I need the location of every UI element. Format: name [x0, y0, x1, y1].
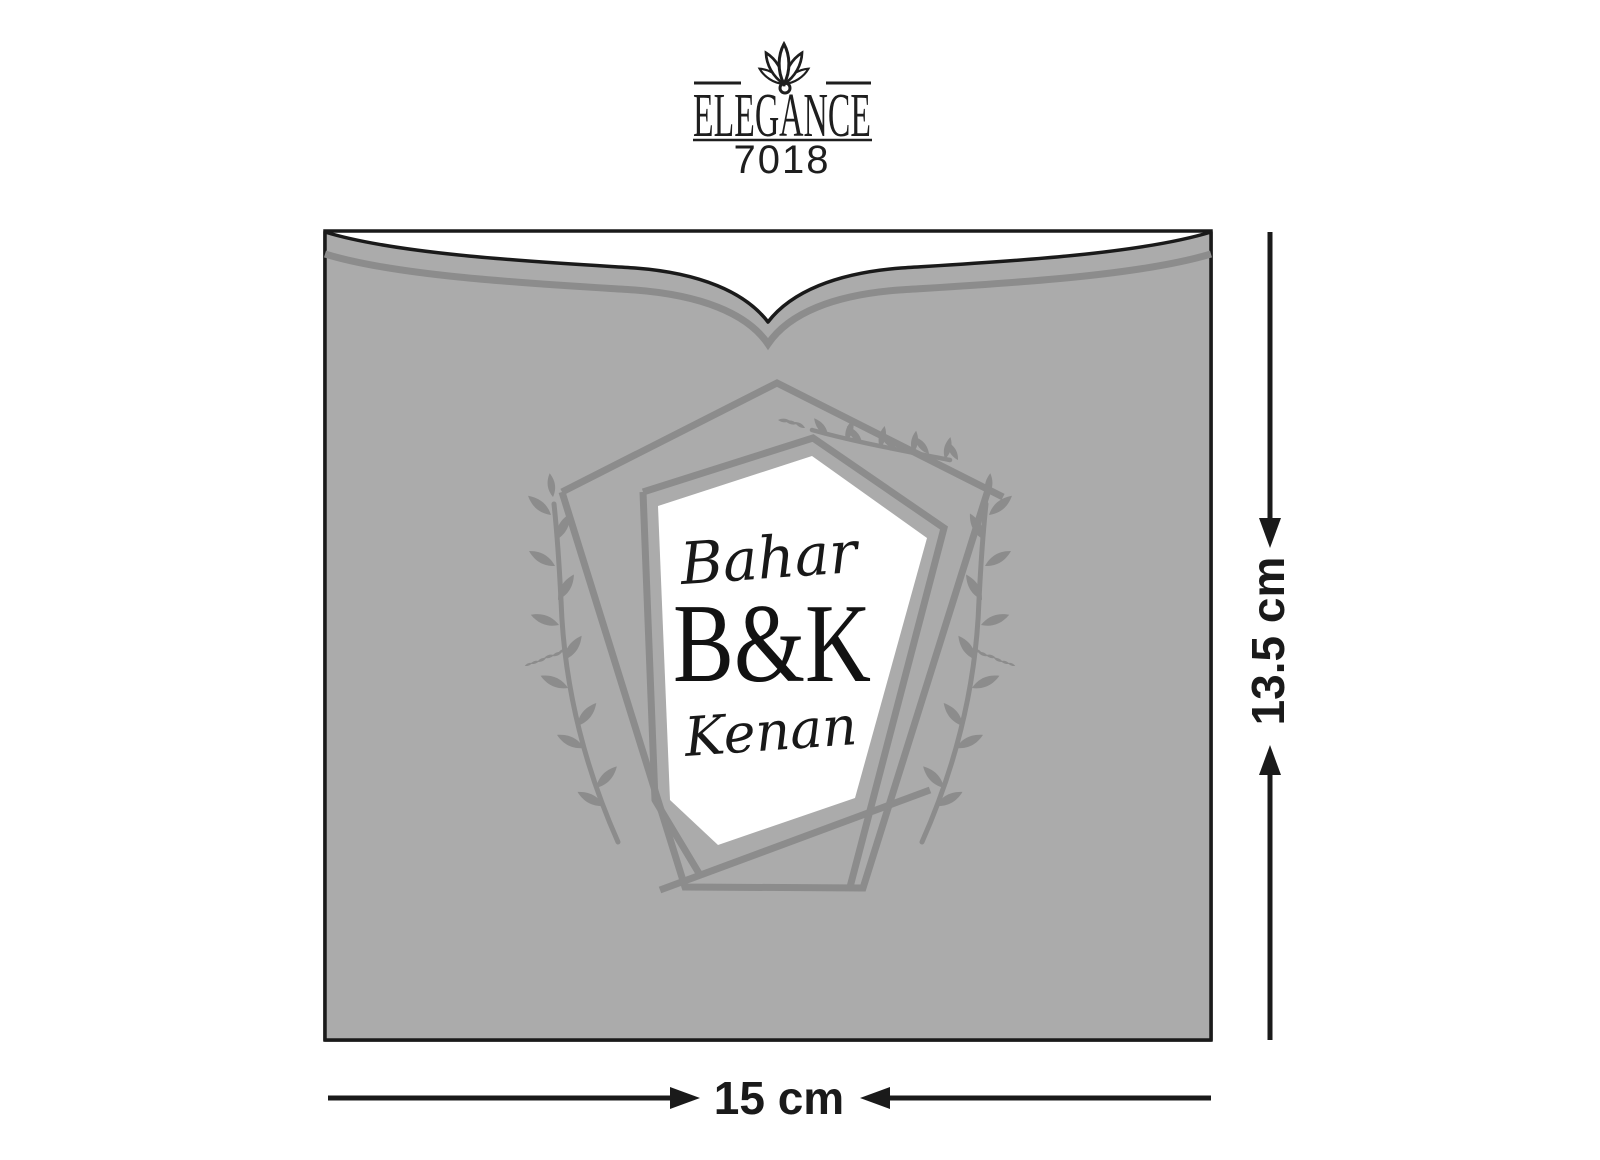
height-dimension: 13.5 cm: [1242, 232, 1294, 1040]
product-code: 7018: [734, 138, 831, 182]
width-dimension-label: 15 cm: [714, 1072, 844, 1124]
width-dimension: 15 cm: [328, 1072, 1211, 1124]
height-dim-arrow-up: [1259, 745, 1281, 775]
monogram-initials: B&K: [673, 582, 871, 706]
width-dim-arrow-right: [670, 1087, 700, 1109]
brand-logo: ELEGANCE 7018: [693, 44, 872, 182]
product-sheet: ELEGANCE 7018: [0, 0, 1600, 1160]
height-dimension-label: 13.5 cm: [1242, 557, 1294, 726]
width-dim-arrow-left: [860, 1087, 890, 1109]
groom-name: Kenan: [681, 694, 859, 769]
height-dim-arrow-down: [1259, 518, 1281, 548]
scene: ELEGANCE 7018: [0, 0, 1600, 1160]
